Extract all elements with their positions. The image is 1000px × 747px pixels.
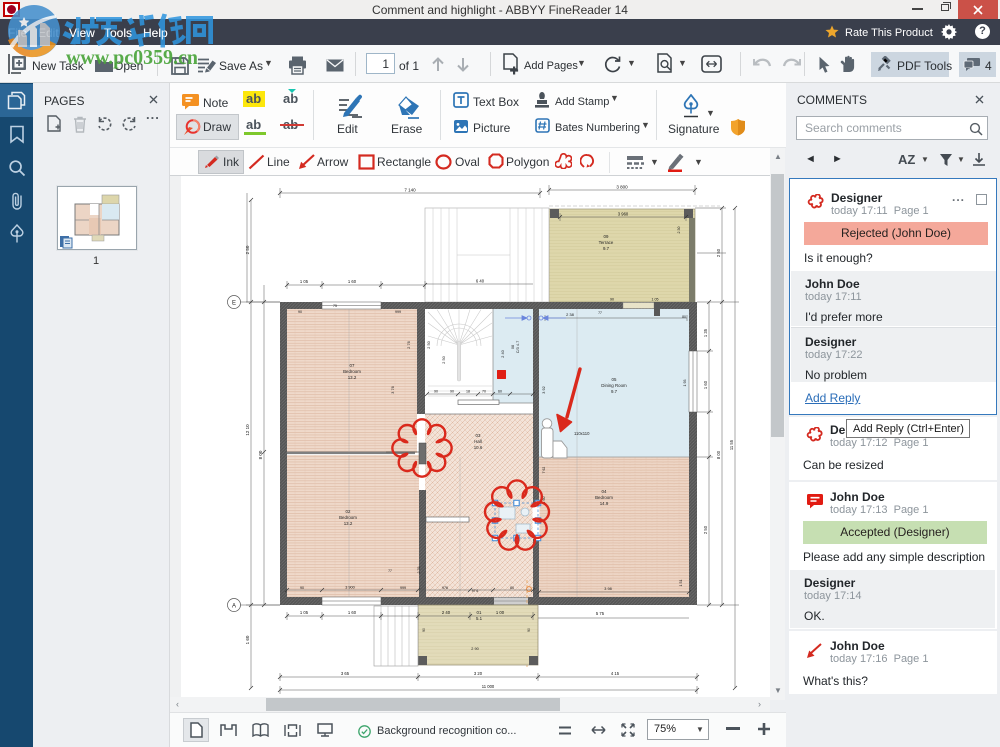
svg-text:18: 18 xyxy=(466,390,470,394)
svg-text:11 000: 11 000 xyxy=(482,684,495,689)
svg-text:80: 80 xyxy=(682,315,686,319)
svg-text:2 90: 2 90 xyxy=(471,647,478,651)
svg-text:2 50: 2 50 xyxy=(245,245,250,254)
svg-text:C/3 4.7: C/3 4.7 xyxy=(515,341,520,354)
svg-text:90: 90 xyxy=(422,628,426,632)
svg-text:1 60: 1 60 xyxy=(348,279,357,284)
svg-text:90: 90 xyxy=(527,628,531,632)
svg-text:2 30: 2 30 xyxy=(677,227,681,234)
svg-text:1 93: 1 93 xyxy=(683,380,687,387)
svg-text:11 55: 11 55 xyxy=(729,439,734,450)
svg-text:1 60: 1 60 xyxy=(703,380,708,389)
svg-text:6 40: 6 40 xyxy=(476,279,485,284)
svg-text:80: 80 xyxy=(510,586,514,590)
svg-text:976: 976 xyxy=(442,586,448,590)
svg-text:5 75: 5 75 xyxy=(596,611,605,616)
svg-text:3 800: 3 800 xyxy=(616,185,628,190)
svg-text:1 05: 1 05 xyxy=(300,610,309,615)
svg-text:2 50: 2 50 xyxy=(716,248,721,257)
svg-text:2 40: 2 40 xyxy=(442,610,451,615)
svg-text:77: 77 xyxy=(388,569,392,573)
svg-text:90: 90 xyxy=(450,390,454,394)
svg-text:75: 75 xyxy=(333,304,337,308)
svg-text:3 98: 3 98 xyxy=(604,587,611,591)
svg-text:1 35: 1 35 xyxy=(703,328,708,337)
svg-text:999: 999 xyxy=(395,310,401,314)
svg-text:1 60: 1 60 xyxy=(245,635,250,644)
svg-text:3 92: 3 92 xyxy=(542,386,546,393)
svg-text:4 15: 4 15 xyxy=(611,671,620,676)
svg-text:12 10: 12 10 xyxy=(245,424,250,436)
svg-text:999: 999 xyxy=(400,586,406,590)
svg-text:7 140: 7 140 xyxy=(404,188,416,193)
svg-text:70: 70 xyxy=(482,390,486,394)
svg-text:2 50: 2 50 xyxy=(427,341,431,348)
svg-text:7 62: 7 62 xyxy=(542,467,546,474)
svg-text:3 900: 3 900 xyxy=(345,586,355,590)
svg-text:90: 90 xyxy=(434,390,438,394)
svg-text:2 50: 2 50 xyxy=(703,525,708,534)
svg-text:90: 90 xyxy=(300,586,304,590)
svg-text:1 05: 1 05 xyxy=(652,298,659,302)
svg-text:8 00: 8 00 xyxy=(716,450,721,459)
svg-text:77: 77 xyxy=(598,311,602,315)
svg-text:A: A xyxy=(232,604,236,610)
svg-text:1 00: 1 00 xyxy=(496,610,505,615)
svg-text:2 38: 2 38 xyxy=(566,312,575,317)
svg-text:2 76: 2 76 xyxy=(407,341,411,348)
svg-text:1 60: 1 60 xyxy=(348,610,357,615)
svg-text:E: E xyxy=(232,301,236,307)
svg-text:3 76: 3 76 xyxy=(391,386,395,393)
svg-text:110x110: 110x110 xyxy=(574,431,590,436)
svg-text:3 65: 3 65 xyxy=(341,671,350,676)
svg-text:90: 90 xyxy=(610,298,614,302)
svg-text:3 20: 3 20 xyxy=(474,671,483,676)
svg-text:8 00: 8 00 xyxy=(258,450,263,459)
svg-text:2 76: 2 76 xyxy=(417,567,421,574)
svg-text:3 960: 3 960 xyxy=(618,212,629,217)
svg-text:2 40: 2 40 xyxy=(501,350,505,357)
svg-text:97 6: 97 6 xyxy=(472,589,479,593)
svg-text:1 51: 1 51 xyxy=(679,580,683,587)
svg-text:60: 60 xyxy=(498,390,502,394)
svg-text:2 50: 2 50 xyxy=(442,356,446,363)
svg-text:90: 90 xyxy=(298,310,302,314)
svg-text:1 05: 1 05 xyxy=(300,279,309,284)
